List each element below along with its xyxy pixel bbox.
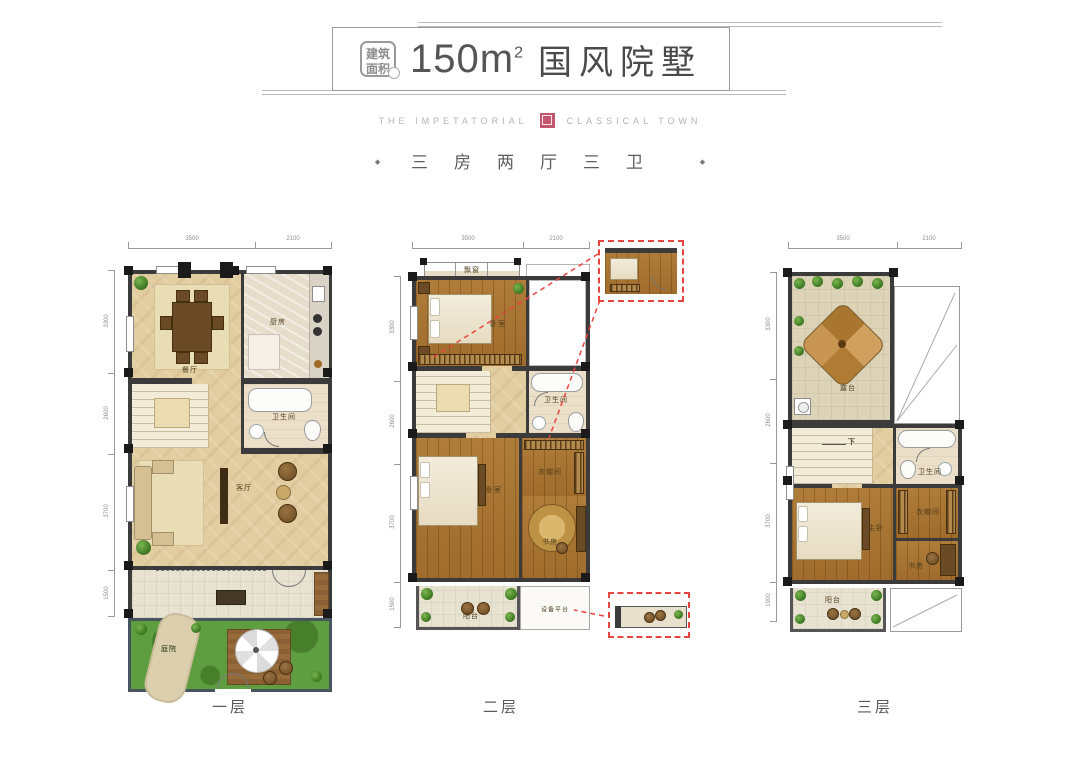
pier [323, 561, 332, 570]
pier [124, 444, 133, 453]
armchair [278, 462, 297, 481]
room-label: 庭院 [161, 644, 177, 654]
dimension-label: 2600 [104, 400, 110, 426]
side-table [276, 485, 291, 500]
garden-chair [279, 661, 293, 675]
dimension-tick [788, 242, 789, 248]
dimension-label: 1900 [766, 587, 772, 613]
desk [576, 506, 586, 552]
room-label: 餐厅 [182, 365, 198, 375]
pier [581, 573, 590, 582]
dimension-label: 3700 [390, 509, 396, 535]
plant [421, 612, 431, 622]
dining-chair [212, 316, 224, 330]
brand-right: CLASSICAL TOWN [567, 116, 702, 126]
open-area [529, 280, 586, 366]
dimension-tick [523, 242, 524, 248]
terrace [128, 570, 332, 618]
wardrobe [946, 490, 956, 534]
dimension-tick [770, 379, 776, 380]
roof-slope [890, 588, 962, 632]
bed [610, 258, 638, 280]
dining-chair [176, 352, 190, 364]
brand-left: THE IMPETATORIAL [379, 116, 528, 126]
wall [132, 378, 192, 384]
floor3-house: 露台 下 卫生间 [788, 272, 962, 584]
pier [124, 266, 133, 275]
window-mullion [455, 263, 456, 277]
room-label: 衣帽间 [538, 467, 562, 477]
chair [644, 612, 655, 623]
wall [526, 280, 529, 366]
area-number: 150m [410, 37, 514, 81]
door-arc [217, 673, 233, 689]
pier [783, 577, 792, 586]
desk [940, 544, 956, 576]
dining-chair [194, 290, 208, 302]
stair-landing [154, 398, 190, 428]
bathtub [248, 388, 312, 412]
parasol-pole [253, 647, 259, 653]
room-label: 衣帽间 [916, 507, 940, 517]
door-arc [289, 570, 306, 587]
floor2-house: 卧室 卫生间 卧室 [412, 276, 590, 582]
kitchen-jar [314, 360, 322, 368]
desk-chair [926, 552, 939, 565]
dimension-tick [128, 242, 129, 248]
pillow [430, 298, 440, 316]
room-label: 阳台 [463, 611, 479, 621]
pier [124, 368, 133, 377]
plant [505, 612, 515, 622]
area-superscript: 2 [514, 44, 524, 61]
badge-stamp-icon [388, 67, 400, 79]
pillow [430, 320, 440, 338]
floor-name: 一层 [128, 696, 332, 717]
plant [134, 276, 148, 290]
side-table [840, 610, 849, 619]
diamond-bullet-icon: ◆ [700, 159, 705, 166]
roof-slope [894, 286, 960, 424]
plant [812, 276, 823, 287]
dimension-label: 3300 [766, 311, 772, 337]
wardrobe [610, 284, 640, 292]
dimension-label: 3500 [836, 236, 849, 242]
garden-chair [263, 671, 277, 685]
pier [889, 268, 898, 277]
pier [955, 577, 964, 586]
area-badge: 建筑 面积 [360, 41, 396, 77]
plant [135, 623, 147, 635]
dimension-left: 3300 2600 3700 1500 [102, 270, 115, 617]
dimension-tick [770, 463, 776, 464]
dimension-label: 2100 [286, 236, 299, 242]
dimension-top: 3500 2100 [412, 236, 590, 249]
plant [871, 614, 881, 624]
pier [408, 573, 417, 582]
pier [323, 368, 332, 377]
dimension-tick [394, 381, 400, 382]
dimension-top: 3500 2100 [128, 236, 332, 249]
gate-opening [215, 689, 251, 692]
floor-name: 二层 [412, 696, 590, 717]
plant [795, 614, 805, 624]
window-mullion [487, 263, 488, 277]
wall [241, 274, 244, 378]
pier [783, 476, 792, 485]
bathtub [898, 430, 956, 448]
nightstand [418, 282, 430, 294]
wardrobe [524, 440, 584, 450]
dimension-label: 2100 [922, 236, 935, 242]
dimension-tick [108, 454, 114, 455]
parasol-pole [838, 340, 846, 348]
plant [795, 590, 806, 601]
dining-chair [160, 316, 172, 330]
dimension-tick [394, 464, 400, 465]
brand-seal-icon [540, 113, 555, 128]
area-value: 150m2 [410, 37, 524, 82]
window [126, 316, 134, 352]
stair-landing [436, 384, 470, 412]
plant [872, 278, 883, 289]
stair-arrow [822, 444, 846, 445]
room-label: 卫生间 [272, 412, 296, 422]
dimension-tick [770, 582, 776, 583]
cooktop-burner [313, 314, 322, 323]
floorplan-page: 建筑 面积 150m2 国风院墅 THE IMPETATORIALCLASSIC… [0, 0, 1080, 765]
garden: 庭院 [128, 618, 332, 692]
wardrobe [418, 354, 522, 365]
dimension-tick [331, 242, 332, 248]
plant [794, 316, 804, 326]
pier [408, 272, 417, 281]
room-label: 客厅 [236, 483, 252, 493]
room-label: 露台 [840, 383, 856, 393]
sofa [134, 466, 152, 540]
wardrobe [898, 490, 908, 534]
spec-text: 三房两厅三卫 [411, 153, 669, 172]
dimension-tick [108, 616, 114, 617]
folding-door-line [156, 570, 266, 572]
plant [191, 623, 201, 633]
spec-line: ◆ 三房两厅三卫 ◆ [0, 148, 1080, 173]
pier [783, 268, 792, 277]
room-label: 卧室 [490, 319, 506, 329]
plant [852, 276, 863, 287]
dimension-left: 3300 2600 3700 1900 [764, 272, 777, 622]
dimension-label: 1500 [104, 580, 110, 606]
pier [955, 476, 964, 485]
window [410, 306, 418, 340]
armchair [278, 504, 297, 523]
plant [136, 540, 151, 555]
dimension-label: 3700 [104, 498, 110, 524]
detail-inset-platform [608, 592, 690, 638]
pier [408, 429, 417, 438]
pier [124, 609, 133, 618]
dimension-tick [394, 276, 400, 277]
pier [323, 266, 332, 275]
dimension-left: 3300 2600 3700 1500 [388, 276, 401, 628]
dimension-tick [108, 373, 114, 374]
room-label: 卧室 [486, 485, 502, 495]
window [126, 486, 134, 522]
dining-chair [194, 352, 208, 364]
dimension-label: 3700 [766, 508, 772, 534]
room-label: 书房 [908, 561, 924, 571]
wall [526, 371, 529, 433]
dimension-tick [255, 242, 256, 248]
dimension-label: 2600 [390, 408, 396, 434]
room-label: 厨房 [270, 317, 286, 327]
room-label: 卫生间 [918, 467, 942, 477]
pier [581, 362, 590, 371]
plant [832, 278, 843, 289]
pier [124, 561, 133, 570]
wardrobe [574, 452, 584, 494]
dimension-tick [108, 570, 114, 571]
dimension-top: 3500 2100 [788, 236, 962, 249]
bathtub [531, 373, 583, 392]
floor3-lower: 下 卫生间 主卧 [788, 424, 962, 584]
stairs [416, 371, 491, 433]
page-title: 国风院墅 [538, 35, 702, 84]
tv-cabinet [220, 468, 228, 524]
door-arc [272, 570, 289, 587]
pier [323, 609, 332, 618]
room-label: 阳台 [825, 595, 841, 605]
floor-plan-3: 3500 2100 3300 2600 3700 1900 [756, 236, 1016, 721]
plant [505, 588, 517, 600]
area-badge-line1: 建筑 [362, 47, 394, 62]
chair [655, 610, 666, 621]
roof-slope-lines [895, 287, 959, 423]
dimension-tick [412, 242, 413, 248]
floor-plan-1: 3500 2100 3300 2600 3700 1500 厨房 [96, 236, 346, 721]
door-mat [216, 590, 246, 605]
pier [955, 420, 964, 429]
roof-terrace: 露台 [788, 272, 894, 424]
washbasin [249, 424, 264, 439]
room-label: 飘窗 [464, 265, 480, 275]
floor-plan-2: 3500 2100 3300 2600 3700 1500 飘窗 [380, 236, 710, 721]
roof-slope-lines [891, 589, 961, 631]
plant [513, 283, 524, 294]
dining-chair [176, 290, 190, 302]
pier [420, 258, 427, 265]
dimension-label: 3300 [104, 308, 110, 334]
pillow [420, 482, 430, 498]
plant [311, 671, 322, 682]
pier [514, 258, 521, 265]
pier [783, 420, 792, 429]
dimension-tick [589, 242, 590, 248]
dimension-tick [108, 270, 114, 271]
dimension-tick [394, 627, 400, 628]
plant [794, 278, 805, 289]
room-label: 设备平台 [541, 605, 569, 614]
plant [421, 588, 433, 600]
pillow [798, 526, 808, 542]
window [246, 266, 276, 274]
wall [615, 606, 621, 628]
pier [581, 272, 590, 281]
header-box: 建筑 面积 150m2 国风院墅 [332, 27, 730, 91]
dimension-label: 1500 [390, 591, 396, 617]
brand-line: THE IMPETATORIALCLASSICAL TOWN [0, 113, 1080, 128]
equipment-platform: 设备平台 [520, 586, 590, 630]
pier [581, 429, 590, 438]
balcony: 阳台 [790, 588, 886, 632]
washing-machine-door [798, 402, 809, 413]
sofa-seat [152, 532, 174, 546]
wall [241, 384, 244, 448]
pier [178, 262, 191, 278]
pillow [798, 506, 808, 522]
plant [674, 610, 683, 619]
diamond-bullet-icon: ◆ [375, 159, 380, 166]
dimension-tick [770, 621, 776, 622]
balcony-chair [827, 608, 839, 620]
stair-label: 下 [848, 437, 856, 447]
window [410, 476, 418, 510]
pillow [420, 462, 430, 478]
stairs: 下 [792, 428, 873, 484]
dimension-tick [770, 272, 776, 273]
balcony-chair [849, 608, 861, 620]
detail-inset-bedroom [598, 240, 684, 302]
plant [871, 590, 882, 601]
dimension-label: 3500 [461, 236, 474, 242]
dimension-label: 3500 [185, 236, 198, 242]
stairs [132, 384, 209, 448]
sofa-seat [152, 460, 174, 474]
dimension-tick [897, 242, 898, 248]
dimension-label: 3300 [390, 314, 396, 340]
kitchen-island [248, 334, 280, 370]
floor1-house: 厨房 餐厅 卫生间 [128, 270, 332, 570]
room-label: 书房 [542, 537, 558, 547]
wall [241, 448, 328, 454]
bed-bench [478, 464, 486, 506]
washbasin [532, 416, 546, 430]
pier [408, 362, 417, 371]
wall [893, 428, 896, 484]
dimension-tick [961, 242, 962, 248]
dining-table [172, 302, 212, 352]
wall [605, 248, 677, 253]
dimension-label: 2600 [766, 407, 772, 433]
room-label: 主卧 [868, 523, 884, 533]
pier [220, 262, 233, 278]
dimension-label: 2100 [549, 236, 562, 242]
cooktop-burner [313, 327, 322, 336]
dimension-tick [394, 582, 400, 583]
kitchen-sink [312, 286, 325, 302]
pier [323, 444, 332, 453]
floor-name: 三层 [788, 696, 962, 717]
balcony: 阳台 [416, 586, 520, 630]
